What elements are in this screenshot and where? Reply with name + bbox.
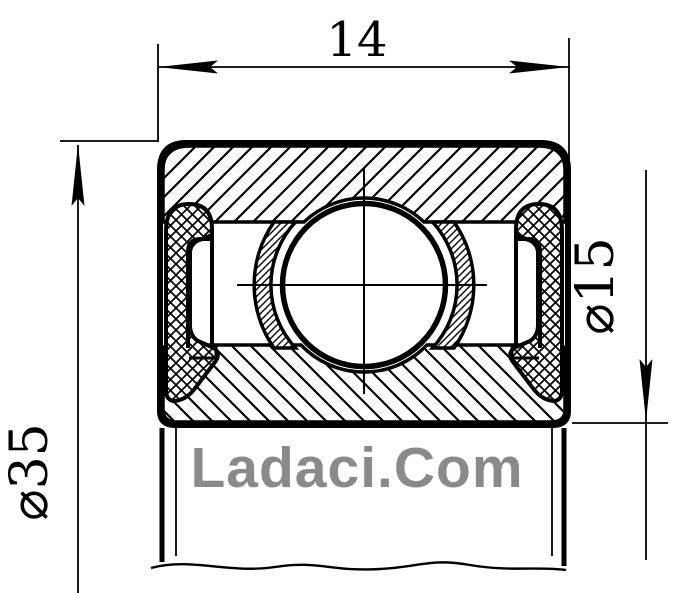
arrow-left-icon <box>158 61 218 74</box>
seal-right <box>510 204 562 401</box>
bearing-technical-drawing: Ladaci.Com <box>0 0 700 593</box>
bearing-body <box>160 143 568 425</box>
od-dim-label: ⌀35 <box>0 423 60 520</box>
bore-dim-label: ⌀15 <box>566 237 626 334</box>
drawing-canvas: Ladaci.Com <box>0 0 700 593</box>
shaft-break-line <box>151 562 566 570</box>
arrow-up-icon <box>72 144 85 206</box>
width-dim-label: 14 <box>326 12 387 68</box>
arrow-right-icon <box>509 61 569 74</box>
watermark-text: Ladaci.Com <box>190 436 523 500</box>
seal-left <box>166 204 218 401</box>
arrow-down-icon <box>640 359 653 421</box>
dimension-bore-diameter: ⌀15 <box>566 170 668 560</box>
dimension-outer-diameter: ⌀35 <box>0 141 158 593</box>
